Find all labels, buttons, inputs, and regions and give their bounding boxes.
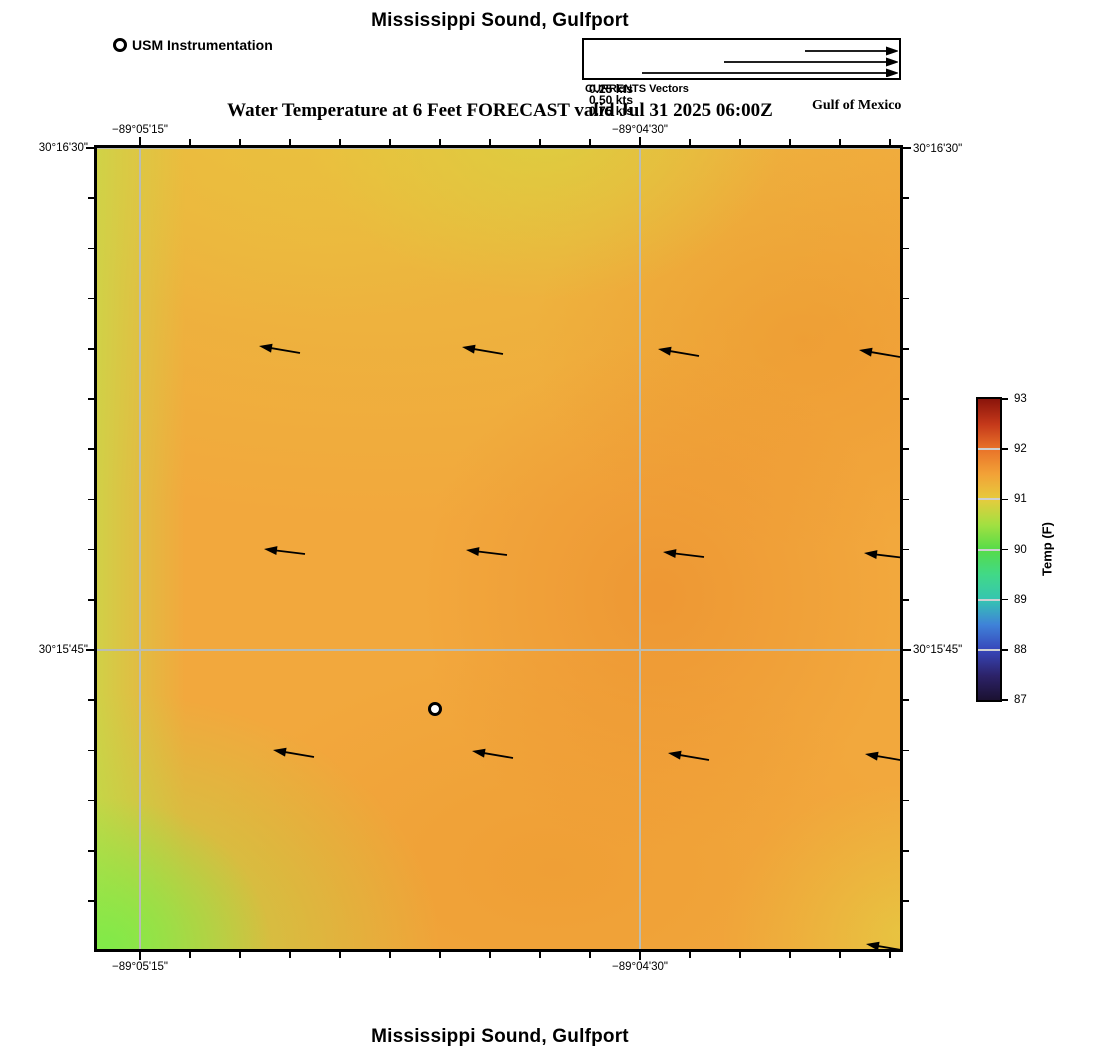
forecast-figure: Mississippi Sound, Gulfport Water Temper… <box>0 0 1100 1050</box>
colorbar <box>976 397 1002 702</box>
tick-mark <box>389 139 391 145</box>
tick-mark <box>88 850 94 852</box>
tick-mark <box>86 649 94 651</box>
tick-mark <box>889 139 891 145</box>
colorbar-tick-label: 91 <box>1014 493 1027 505</box>
tick-mark <box>789 139 791 145</box>
colorbar-crossline <box>978 649 1000 651</box>
tick-mark <box>88 549 94 551</box>
tick-mark <box>903 348 909 350</box>
tick-mark <box>839 952 841 958</box>
currents-caption: CURRENTS Vectors <box>585 83 689 95</box>
x-tick-label-bottom-east: −89°04'30" <box>612 961 668 973</box>
y-tick-label-right-south: 30°15'45" <box>913 644 962 656</box>
colorbar-crossline <box>978 599 1000 601</box>
tick-mark <box>88 298 94 300</box>
currents-legend-label: 0.75 kts <box>589 106 633 117</box>
tick-mark <box>88 348 94 350</box>
tick-mark <box>903 699 909 701</box>
top-title: Mississippi Sound, Gulfport <box>371 10 629 32</box>
tick-mark <box>239 952 241 958</box>
x-tick-label-top-west: −89°05'15" <box>112 124 168 136</box>
tick-mark <box>903 599 909 601</box>
tick-mark <box>903 298 909 300</box>
tick-mark <box>903 800 909 802</box>
colorbar-tick-label: 93 <box>1014 393 1027 405</box>
tick-mark <box>339 952 341 958</box>
colorbar-tick-label: 88 <box>1014 644 1027 656</box>
tick-mark <box>439 952 441 958</box>
colorbar-tick-label: 92 <box>1014 443 1027 455</box>
tick-mark <box>539 952 541 958</box>
bottom-title: Mississippi Sound, Gulfport <box>371 1026 629 1048</box>
y-tick-label-left-north: 30°16'30" <box>39 142 88 154</box>
colorbar-tick-label: 87 <box>1014 694 1027 706</box>
tick-mark <box>903 850 909 852</box>
tick-mark <box>903 649 911 651</box>
forecast-subtitle: Water Temperature at 6 Feet FORECAST val… <box>227 100 773 122</box>
tick-mark <box>539 139 541 145</box>
x-tick-label-top-east: −89°04'30" <box>612 124 668 136</box>
tick-mark <box>489 139 491 145</box>
tick-mark <box>639 137 641 145</box>
currents-legend-arrows <box>584 40 898 77</box>
colorbar-crossline <box>978 448 1000 450</box>
tick-mark <box>903 197 909 199</box>
map-plot-area <box>94 145 903 952</box>
y-tick-label-left-south: 30°15'45" <box>39 644 88 656</box>
tick-mark <box>739 139 741 145</box>
station-marker-icon <box>113 38 127 52</box>
tick-mark <box>903 750 909 752</box>
tick-mark <box>88 248 94 250</box>
tick-mark <box>489 952 491 958</box>
tick-mark <box>88 398 94 400</box>
tick-mark <box>88 599 94 601</box>
tick-mark <box>88 900 94 902</box>
y-tick-label-right-north: 30°16'30" <box>913 143 962 155</box>
tick-mark <box>139 952 141 960</box>
station-legend-label: USM Instrumentation <box>132 37 273 53</box>
tick-mark <box>903 398 909 400</box>
tick-mark <box>88 197 94 199</box>
tick-mark <box>88 750 94 752</box>
usm-station-marker <box>428 702 442 716</box>
tick-mark <box>189 139 191 145</box>
station-legend: USM Instrumentation <box>113 37 273 53</box>
x-tick-label-bottom-west: −89°05'15" <box>112 961 168 973</box>
tick-mark <box>239 139 241 145</box>
tick-mark <box>289 952 291 958</box>
tick-mark <box>88 499 94 501</box>
colorbar-tick-label: 90 <box>1014 544 1027 556</box>
region-label: Gulf of Mexico <box>812 98 901 114</box>
tick-mark <box>589 952 591 958</box>
tick-mark <box>289 139 291 145</box>
currents-legend-box: 0.25 kts 0.50 kts 0.75 kts <box>582 38 901 80</box>
tick-mark <box>903 549 909 551</box>
tick-mark <box>903 448 909 450</box>
colorbar-tick-label: 89 <box>1014 594 1027 606</box>
tick-mark <box>689 952 691 958</box>
tick-mark <box>839 139 841 145</box>
tick-mark <box>639 952 641 960</box>
tick-mark <box>689 139 691 145</box>
tick-mark <box>739 952 741 958</box>
tick-mark <box>88 699 94 701</box>
tick-mark <box>139 137 141 145</box>
tick-mark <box>439 139 441 145</box>
tick-mark <box>189 952 191 958</box>
tick-mark <box>86 147 94 149</box>
tick-mark <box>903 147 911 149</box>
current-vector-arrows <box>97 148 900 949</box>
tick-mark <box>88 800 94 802</box>
tick-mark <box>903 248 909 250</box>
colorbar-crossline <box>978 549 1000 551</box>
tick-mark <box>903 900 909 902</box>
tick-mark <box>88 448 94 450</box>
tick-mark <box>589 139 591 145</box>
tick-mark <box>889 952 891 958</box>
colorbar-axis-label: Temp (F) <box>1040 522 1055 576</box>
tick-mark <box>789 952 791 958</box>
tick-mark <box>339 139 341 145</box>
colorbar-crossline <box>978 498 1000 500</box>
tick-mark <box>903 499 909 501</box>
tick-mark <box>389 952 391 958</box>
